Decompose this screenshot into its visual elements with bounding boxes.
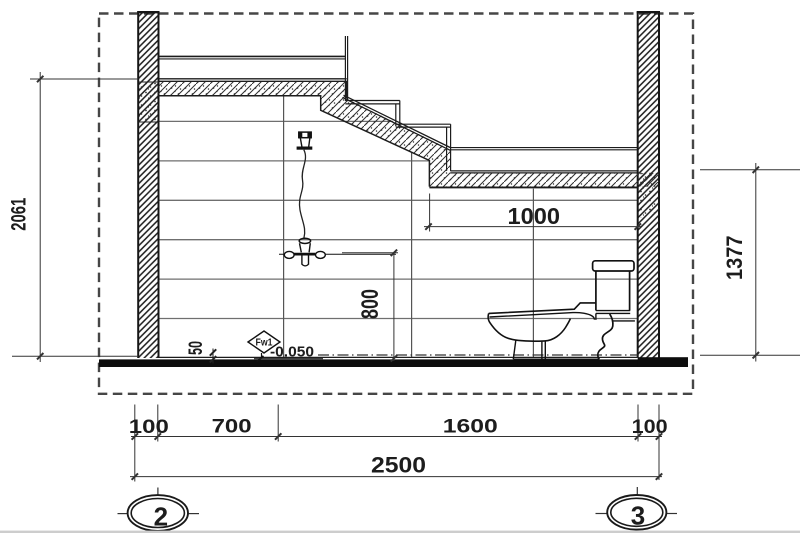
svg-text:2061: 2061 — [7, 197, 30, 230]
svg-text:3: 3 — [631, 501, 645, 531]
svg-text:800: 800 — [357, 289, 384, 319]
svg-text:700: 700 — [212, 417, 252, 438]
svg-text:1000: 1000 — [508, 203, 561, 229]
svg-text:1600: 1600 — [443, 417, 498, 438]
svg-text:-0.050: -0.050 — [270, 344, 314, 361]
svg-text:100: 100 — [632, 417, 668, 438]
svg-text:100: 100 — [129, 417, 169, 438]
svg-text:1377: 1377 — [722, 235, 747, 280]
svg-text:2500: 2500 — [371, 453, 426, 478]
svg-text:2: 2 — [154, 502, 168, 532]
svg-text:50: 50 — [186, 341, 207, 355]
